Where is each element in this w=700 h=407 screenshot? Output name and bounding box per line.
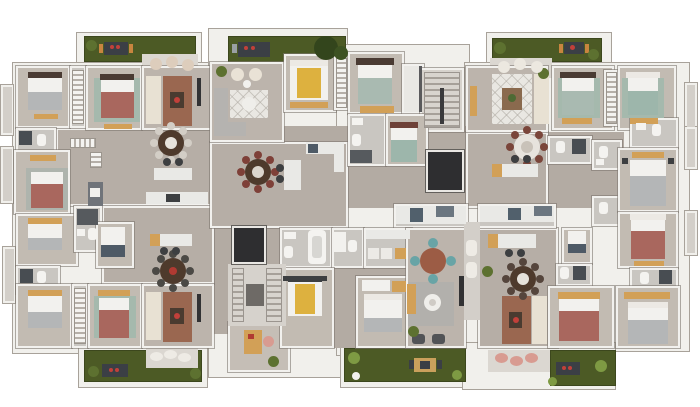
terrace-tl-seat-b bbox=[166, 56, 178, 68]
terrace-tl-bush bbox=[86, 40, 97, 51]
kitchen-island-5-wood bbox=[492, 164, 502, 177]
stool-5a bbox=[511, 155, 519, 163]
terrace-tr-seat-c bbox=[531, 61, 543, 73]
terrace-br-flowers-a bbox=[562, 366, 566, 370]
toilet-4 bbox=[352, 134, 361, 146]
plant-6 bbox=[482, 266, 493, 277]
terrace-br-chair-c bbox=[525, 353, 538, 363]
flowers-2 bbox=[174, 313, 180, 319]
side-balcony-lounger-a bbox=[466, 240, 477, 256]
console-5 bbox=[470, 86, 477, 116]
bed-mauve-2-blanket bbox=[559, 311, 599, 341]
tv-4 bbox=[459, 276, 464, 306]
terrace-tc-flowers-b bbox=[251, 46, 255, 50]
washer-l2 bbox=[381, 248, 392, 259]
shower-mat-6 bbox=[334, 232, 346, 252]
office-chair bbox=[263, 336, 274, 347]
terrace-bl-flowers-a bbox=[109, 368, 113, 372]
stool-3a bbox=[276, 164, 284, 172]
bed-yellow-1-blanket bbox=[297, 68, 321, 98]
kitchen-island-6-wood bbox=[488, 234, 498, 248]
dining-chairs-2 bbox=[169, 267, 177, 275]
bed-2-blanket bbox=[101, 92, 134, 118]
wardrobe-gray-2 bbox=[392, 281, 406, 292]
balcony-right-1-floor bbox=[687, 85, 695, 127]
stairs-2-core bbox=[246, 284, 264, 306]
side-balcony-lounger-b bbox=[466, 262, 477, 278]
bed-teal-2-blanket bbox=[391, 140, 417, 162]
terrace-tl-chair-b bbox=[129, 44, 133, 53]
shower-3 bbox=[77, 209, 98, 225]
shower-4 bbox=[350, 150, 372, 163]
bench-gray-3 bbox=[624, 292, 670, 299]
bed-mauve-right-bench bbox=[634, 261, 664, 266]
balcony-left-3-floor bbox=[5, 249, 14, 301]
hall-apartment-3 bbox=[210, 142, 348, 228]
terrace-br-chair-b bbox=[510, 356, 523, 366]
bed-mauve-right-blanket bbox=[631, 231, 665, 259]
armchair-4b bbox=[432, 334, 445, 344]
stool-5b bbox=[523, 155, 531, 163]
kitchen-island-1 bbox=[154, 168, 192, 180]
terrace-bc-bush-b bbox=[452, 370, 462, 380]
bookshelf-4 bbox=[407, 284, 416, 314]
closet-5-shelves bbox=[606, 72, 617, 124]
plant-3 bbox=[216, 66, 227, 77]
flowers-6 bbox=[513, 317, 519, 323]
terrace-bc-chair-b bbox=[437, 360, 442, 369]
floorplan-render bbox=[0, 0, 700, 407]
toilet-wc2 bbox=[599, 202, 608, 214]
bed-teal-2-mattress bbox=[391, 128, 417, 140]
stool-6a bbox=[505, 249, 513, 257]
cabinet-cb-2 bbox=[436, 206, 454, 217]
terrace-tl-seat-a bbox=[150, 58, 162, 70]
bed-gray-2-blanket bbox=[364, 318, 402, 332]
terrace-tl-flowers-a bbox=[110, 45, 114, 49]
sink-4 bbox=[352, 118, 363, 125]
cabinet-br-2 bbox=[534, 206, 552, 216]
terrace-bl-bush-a bbox=[88, 366, 99, 377]
dresser-1 bbox=[30, 155, 56, 161]
terrace-bl-lounger-b bbox=[164, 350, 177, 359]
bed-teal-4-mattress bbox=[628, 78, 658, 91]
bed-2-mattress bbox=[101, 80, 134, 92]
sink-wc1 bbox=[596, 159, 604, 165]
toilet-9 bbox=[640, 272, 649, 284]
elevator-2 bbox=[232, 226, 266, 264]
terrace-tr-bush-a bbox=[494, 42, 506, 54]
terrace-tc-seat-a bbox=[231, 68, 244, 81]
bed-teal-1-headboard bbox=[356, 58, 394, 65]
washer-7 bbox=[572, 139, 586, 154]
cabinet-cb-1 bbox=[410, 208, 423, 222]
terrace-bc-chair-a bbox=[409, 360, 414, 369]
nightstand-y2-right bbox=[322, 276, 327, 281]
terrace-br-bush-a bbox=[595, 360, 607, 372]
terrace-tc-seat-b bbox=[249, 68, 262, 81]
coffee-table-3 bbox=[242, 97, 256, 111]
terrace-tr-seat-a bbox=[498, 61, 510, 73]
bed-6-mattress bbox=[99, 298, 129, 310]
terrace-bottom-center-turf bbox=[344, 348, 466, 382]
terrace-bl-lounger-a bbox=[150, 352, 163, 361]
dining-chairs-3 bbox=[254, 168, 262, 176]
toilet-6 bbox=[348, 240, 357, 252]
bed-gray-right-mattress bbox=[630, 160, 666, 176]
nightstand-gr-right bbox=[668, 158, 674, 164]
sink-5 bbox=[284, 232, 296, 239]
stairs-2-steps-right bbox=[266, 268, 282, 322]
fridge-3 bbox=[308, 144, 318, 153]
closet-1-shelves bbox=[72, 70, 84, 124]
cabinet-br-1 bbox=[508, 208, 521, 220]
terrace-bl-lounger-c bbox=[178, 353, 191, 362]
terrace-bl-flowers-b bbox=[115, 368, 119, 372]
terrace-bc-table-top bbox=[420, 361, 430, 369]
bed-teal-3-mattress bbox=[562, 78, 594, 91]
maid-bed-2-blanket bbox=[568, 244, 586, 253]
stove-1 bbox=[166, 194, 180, 202]
terrace-br-flowers-b bbox=[568, 366, 572, 370]
stool-2a bbox=[160, 247, 168, 255]
sofa-2 bbox=[146, 292, 161, 340]
bed-gray-right-blanket bbox=[630, 176, 666, 206]
flowers-1 bbox=[174, 97, 180, 103]
dining-chairs-5 bbox=[523, 143, 531, 151]
terrace-br-bush-b bbox=[548, 377, 557, 386]
washer-1 bbox=[19, 131, 32, 145]
terrace-bc-bush-a bbox=[348, 352, 360, 364]
terrace-tc-tree-b bbox=[334, 46, 348, 60]
kitchen-counter-3b bbox=[334, 142, 344, 172]
toilet-5 bbox=[284, 246, 293, 258]
bed-teal-1-bench bbox=[360, 106, 394, 113]
terrace-tl-flowers-b bbox=[116, 45, 120, 49]
terrace-tc-side bbox=[232, 44, 237, 53]
tub-5-inner bbox=[312, 236, 322, 258]
sofa-3-chaise bbox=[214, 122, 246, 136]
closet-gray-2 bbox=[362, 280, 390, 291]
laundry-counter bbox=[366, 230, 410, 239]
tv-2 bbox=[197, 294, 201, 322]
bed-teal-1-mattress bbox=[358, 65, 392, 78]
bed-yellow-1-bench bbox=[290, 102, 328, 108]
dining-chairs-6 bbox=[519, 275, 527, 283]
stool-6b bbox=[517, 249, 525, 257]
toilet-8 bbox=[652, 124, 661, 136]
kitchen-island-2-wood bbox=[150, 234, 160, 246]
terrace-tr-bush-b bbox=[588, 49, 599, 60]
stool-1b bbox=[175, 158, 183, 166]
balcony-left-1-floor bbox=[3, 87, 12, 133]
nightstand-gr-left bbox=[622, 158, 628, 164]
balcony-right-2-floor bbox=[687, 129, 695, 167]
stool-3b bbox=[276, 175, 284, 183]
balcony-right-3-floor bbox=[687, 213, 695, 253]
stairs-2-steps-left bbox=[232, 268, 244, 322]
closet-3-shelves bbox=[336, 58, 347, 108]
bed-1-blanket bbox=[28, 92, 62, 110]
toilet-wc1 bbox=[599, 146, 608, 158]
terrace-tc-flowers-a bbox=[244, 46, 248, 50]
maid-bed-1-blanket bbox=[101, 245, 125, 257]
sink-3 bbox=[77, 229, 85, 236]
sofa-6 bbox=[532, 296, 547, 344]
dining-chairs-4 bbox=[428, 256, 438, 266]
tv-1 bbox=[197, 78, 201, 106]
balcony-left-2-floor bbox=[3, 149, 12, 201]
toilet-10 bbox=[560, 267, 569, 279]
toilet-3 bbox=[88, 228, 97, 240]
kitchen-counter-cb bbox=[396, 206, 466, 224]
terrace-br-chair-a bbox=[495, 353, 508, 363]
closet-hall-1 bbox=[70, 138, 96, 148]
office-plant bbox=[268, 356, 279, 367]
bed-mauve-right-mattress bbox=[631, 220, 665, 231]
kitchen-island-3 bbox=[284, 160, 301, 190]
terrace-tr-seat-b bbox=[514, 58, 526, 70]
sofa-5 bbox=[534, 74, 549, 124]
plant-4 bbox=[408, 326, 419, 337]
washer-10 bbox=[573, 266, 586, 280]
cabinet-l3 bbox=[395, 248, 406, 259]
washer-l1 bbox=[368, 248, 379, 259]
washer-2 bbox=[20, 269, 33, 283]
terrace-tr-flowers bbox=[570, 45, 575, 50]
bed-gray-3-blanket bbox=[628, 320, 668, 344]
kitchenette-1-sink bbox=[90, 188, 100, 197]
toilet-7 bbox=[556, 141, 565, 153]
elevator-1 bbox=[426, 150, 464, 192]
sink-8 bbox=[636, 123, 646, 130]
bed-mauve-2-headboard bbox=[558, 292, 600, 299]
sofa-1 bbox=[146, 76, 161, 124]
bed-teal-3-bench bbox=[562, 118, 592, 124]
bed-2-bench bbox=[104, 124, 132, 129]
toilet-2 bbox=[37, 271, 46, 283]
bench-gray-right bbox=[632, 152, 664, 158]
dining-chairs-1 bbox=[167, 139, 175, 147]
terrace-tl-chair-a bbox=[99, 44, 103, 53]
terrace-tc-table bbox=[243, 80, 251, 88]
bed-teal-3-blanket bbox=[562, 91, 594, 115]
closet-4-edge bbox=[419, 66, 422, 112]
bed-teal-4-blanket bbox=[628, 91, 658, 115]
terrace-tr-chair-a bbox=[559, 44, 563, 53]
closet-hall-2 bbox=[90, 152, 102, 168]
bed-yellow-2-blanket bbox=[295, 284, 315, 314]
closet-4-doors bbox=[404, 66, 420, 112]
bed-4-blanket bbox=[28, 238, 62, 250]
bed-mauve-2-mattress bbox=[559, 299, 599, 311]
bed-gray-3-mattress bbox=[628, 308, 668, 320]
coffee-table-4-inner bbox=[429, 299, 436, 306]
bed-6-blanket bbox=[99, 310, 129, 338]
closet-2-shelves bbox=[74, 288, 86, 344]
bed-teal-1-blanket bbox=[358, 78, 392, 104]
plant-5a bbox=[508, 94, 516, 102]
stairs-1-rail bbox=[440, 88, 444, 124]
toilet-1 bbox=[37, 134, 46, 146]
terrace-bc-pot bbox=[352, 372, 360, 380]
terrace-tl-seat-c bbox=[182, 59, 194, 71]
office-items bbox=[248, 334, 254, 339]
bed-5-blanket bbox=[28, 312, 62, 328]
washer-9 bbox=[659, 270, 672, 284]
terrace-bl-bush-b bbox=[190, 368, 201, 379]
stool-1a bbox=[163, 158, 171, 166]
bed-3-mattress bbox=[31, 172, 63, 184]
stool-2b bbox=[172, 247, 180, 255]
bed-1-bench bbox=[34, 114, 58, 119]
bed-3-blanket bbox=[31, 184, 63, 208]
